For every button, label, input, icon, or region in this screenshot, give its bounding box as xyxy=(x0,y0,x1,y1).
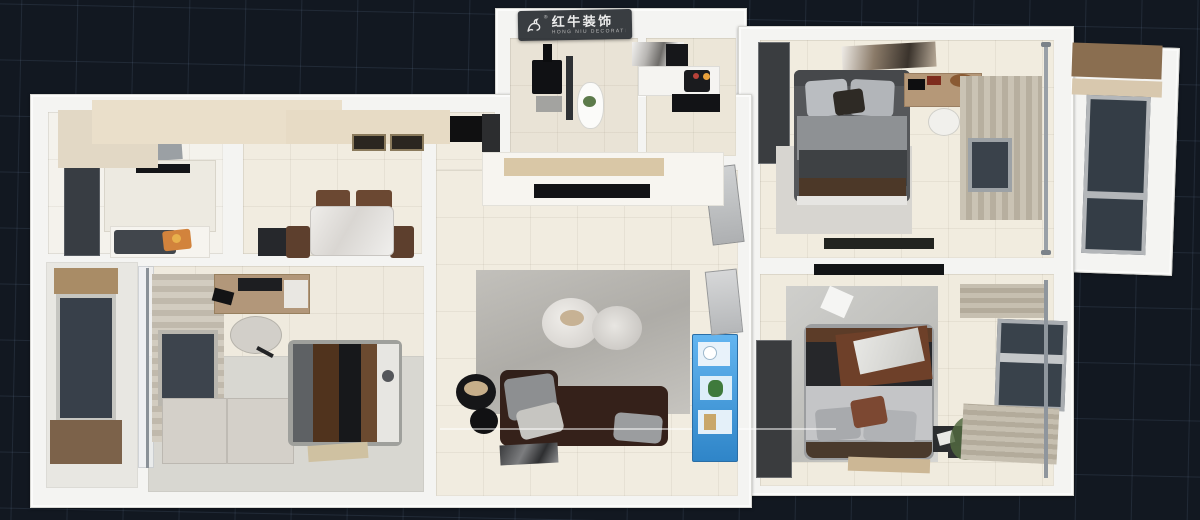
bull-icon xyxy=(525,17,543,35)
blue-cabinet-book xyxy=(704,414,716,430)
bedroom1-pillow-dark xyxy=(832,88,865,116)
trademark-symbol: ® xyxy=(544,14,548,20)
blue-cabinet-plant xyxy=(708,380,723,397)
bedroom1-stool xyxy=(928,108,960,136)
bedroom3-bed-pillow-band xyxy=(377,344,399,442)
washer-knob-orange xyxy=(703,73,710,80)
bedroom3-bed-band-brown xyxy=(313,344,339,442)
bath-mat xyxy=(536,96,562,112)
brand-watermark: ® 红牛装饰 HONG NIU DECORATION xyxy=(518,9,633,41)
living-highlight-line xyxy=(440,428,836,430)
floorplan xyxy=(0,0,1200,520)
bedroom2-curtain-rod xyxy=(1044,280,1048,478)
toilet-plant xyxy=(583,96,596,107)
hall-door-bedroom2 xyxy=(705,269,744,336)
bedroom1-artwork xyxy=(841,42,936,72)
balcony-right-cabinet xyxy=(1071,42,1162,79)
bedroom2-pillow-rust xyxy=(850,395,888,428)
dining-chair-sw xyxy=(286,226,310,258)
bedroom3-dresser xyxy=(162,398,294,464)
bedroom3-partition-rod xyxy=(146,268,149,468)
bedroom1-curtain-rod xyxy=(1044,44,1048,252)
brand-name: 红牛装饰 xyxy=(552,14,626,28)
bedroom1-laptop xyxy=(908,79,925,90)
bedroom3-bed-band-black xyxy=(339,344,361,442)
balcony-left-cabinet-top xyxy=(54,268,118,294)
bath-vanity xyxy=(532,60,562,94)
tv-media-wood-shelf xyxy=(504,158,664,176)
tv-screen xyxy=(534,184,650,198)
brand-tagline: HONG NIU DECORATION xyxy=(552,29,625,35)
blue-cabinet-clock xyxy=(703,346,717,360)
dining-table-marble xyxy=(310,206,394,256)
bedroom3-pillow-button xyxy=(382,370,394,382)
bedroom1-mattress-edge xyxy=(797,196,907,205)
bedroom1-foot-band xyxy=(799,178,906,198)
side-table-tray xyxy=(464,381,488,396)
floor-bathroom xyxy=(510,38,638,156)
coffee-table-tray xyxy=(560,310,584,326)
bedroom1-desk-box xyxy=(927,76,941,85)
bedroom2-tv xyxy=(814,264,944,275)
bedroom3-bed-band-brown2 xyxy=(361,344,377,442)
side-table-small xyxy=(470,408,498,434)
bedroom1-doormat xyxy=(824,238,934,249)
washer-knob-red xyxy=(693,73,699,79)
bedroom2-doormat xyxy=(848,457,930,474)
living-doormat xyxy=(500,442,559,465)
bedroom3-bed-band-gray xyxy=(293,344,313,442)
bedroom3-desk-panel xyxy=(284,280,308,308)
bedroom3-dresser-seam xyxy=(226,398,228,464)
balcony-right-window xyxy=(1081,95,1150,255)
bedroom2-wardrobe xyxy=(756,340,792,478)
bedroom3-window xyxy=(158,330,218,406)
balcony-left-cabinet-bottom xyxy=(50,420,122,464)
bedroom1-rod-cap-bottom xyxy=(1041,250,1051,255)
bedroom2-window xyxy=(994,319,1067,411)
bedroom2-curtain-top xyxy=(960,284,1048,318)
shower-glass-panel xyxy=(566,56,573,120)
dining-ceiling-light-2 xyxy=(390,134,424,151)
bedroom3-desk-slot xyxy=(238,278,282,291)
balcony-right-ledge xyxy=(1072,78,1163,97)
laundry-base-unit xyxy=(672,94,720,112)
kitchen-food-item xyxy=(172,234,181,243)
bedroom1-rod-cap-top xyxy=(1041,42,1051,47)
bedroom2-foot-band xyxy=(806,442,932,458)
coffee-table-small xyxy=(592,306,642,350)
balcony-left-window xyxy=(56,294,116,422)
bedroom1-window xyxy=(968,138,1012,192)
bath-faucet xyxy=(543,44,552,62)
scene-canvas[interactable]: ® 红牛装饰 HONG NIU DECORATION xyxy=(0,0,1200,520)
dining-ceiling-light-1 xyxy=(352,134,386,151)
